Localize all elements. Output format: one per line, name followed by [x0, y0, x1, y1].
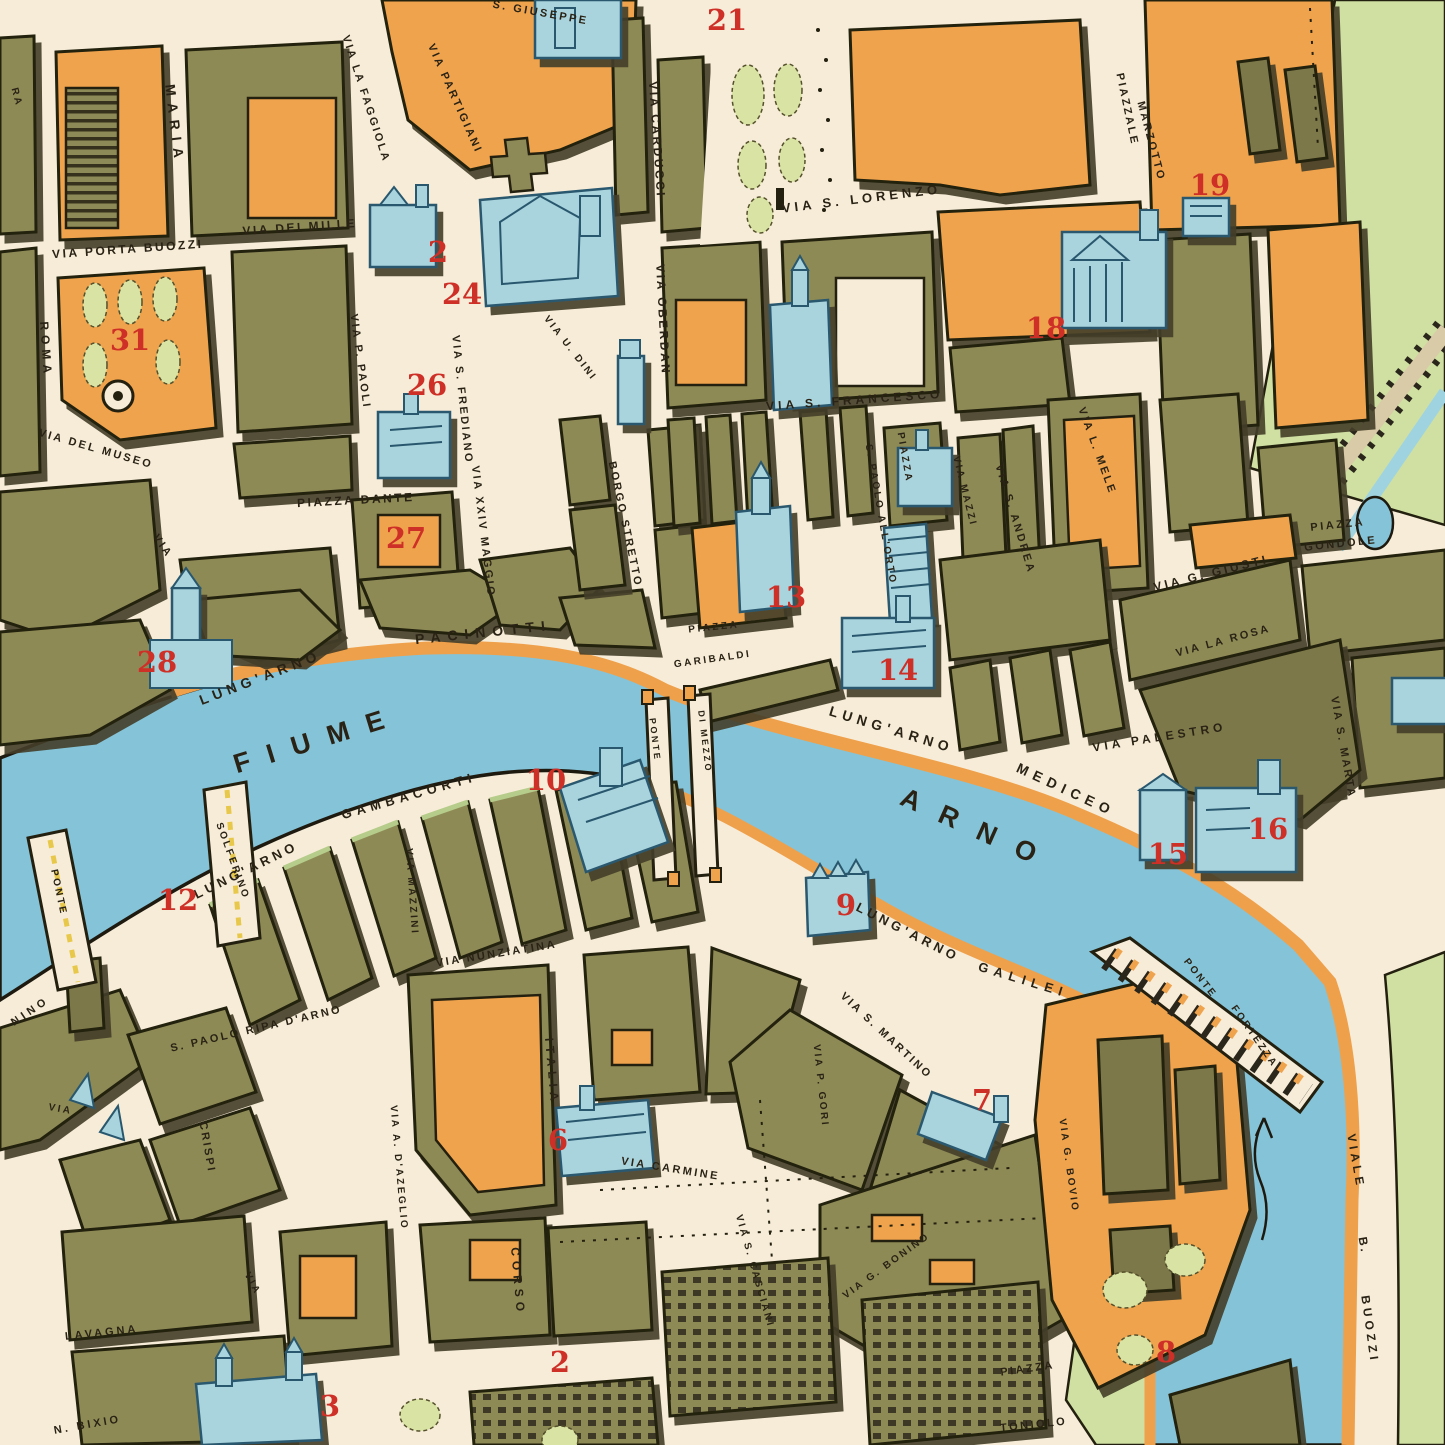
landmark-number: 9 — [836, 888, 856, 922]
landmark-number: 2 — [428, 235, 448, 269]
landmark-number: 19 — [1190, 168, 1230, 202]
landmark-number: 10 — [526, 763, 566, 797]
landmark-number: 8 — [1156, 1335, 1176, 1369]
landmark-number: 21 — [707, 3, 747, 37]
landmark-number: 18 — [1026, 311, 1066, 345]
church-landmark — [1392, 678, 1445, 724]
landmark-number: 3 — [320, 1389, 340, 1423]
landmark-number: 13 — [766, 580, 806, 614]
map-svg: MARIAVIA PORTA BUOZZIVIA DEI MILLEVIA LA… — [0, 0, 1445, 1445]
landmark-number: 26 — [407, 368, 447, 402]
landmark-number: 28 — [137, 645, 177, 679]
landmark-number: 16 — [1248, 812, 1288, 846]
pictorial-city-map: MARIAVIA PORTA BUOZZIVIA DEI MILLEVIA LA… — [0, 0, 1445, 1445]
landmark-number: 15 — [1148, 837, 1188, 871]
landmark-number: 12 — [158, 883, 198, 917]
church-landmark — [618, 340, 644, 424]
landmark-number: 14 — [878, 653, 918, 687]
street-label: B. — [1356, 1236, 1373, 1255]
church-landmark — [480, 188, 618, 306]
landmark-number: 27 — [386, 521, 426, 555]
church-landmark — [1183, 198, 1229, 236]
landmark-number: 7 — [972, 1083, 992, 1117]
landmark-number: 31 — [110, 323, 150, 357]
landmark-number: 6 — [548, 1123, 568, 1157]
landmark-number: 24 — [442, 277, 482, 311]
landmark-number: 2 — [550, 1345, 570, 1379]
